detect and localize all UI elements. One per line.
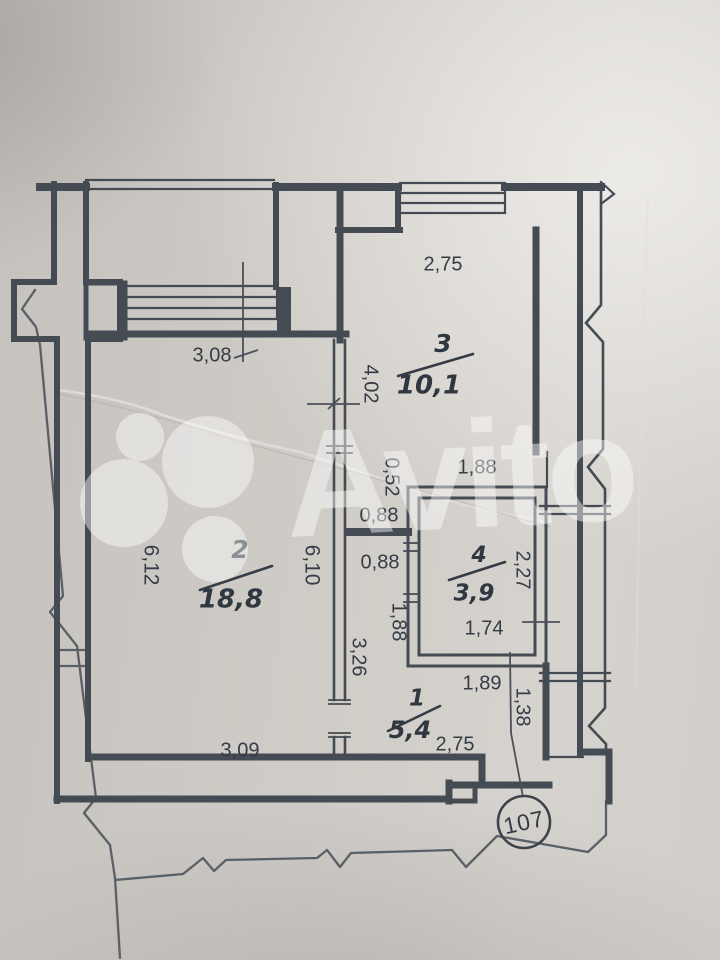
dim-room4-bottom-outer: 1,89 [463, 672, 502, 694]
bottom-wall [57, 752, 609, 801]
svg-text:18,8: 18,8 [199, 585, 263, 615]
svg-text:5,4: 5,4 [389, 716, 432, 744]
dim-entry-side: 1,38 [512, 688, 534, 727]
plan-svg: 107 2,75 3,08 4,02 0,52 1,88 0,88 0,88 1… [0, 0, 720, 960]
room3-window [400, 183, 505, 213]
avito-dots-logo-icon [80, 413, 254, 582]
dim-room4-bottom-inner: 1,74 [465, 617, 504, 639]
watermark-text: Avito [280, 382, 638, 570]
dim-room2-left: 6,12 [139, 545, 162, 586]
boundary-line-left [22, 290, 120, 958]
room3-upper-wall [338, 192, 400, 230]
dim-room1-bottom: 2,75 [436, 733, 475, 755]
apartment-number: 107 [501, 805, 547, 839]
cross-column-outer [14, 184, 57, 801]
room-1-label: 1 5,4 [388, 686, 440, 745]
entry-exterior-chunk [583, 752, 609, 801]
floor-plan-photo: 107 2,75 3,08 4,02 0,52 1,88 0,88 0,88 1… [0, 0, 720, 960]
dim-aux-balcony [234, 262, 258, 362]
dim-balcony: 3,08 [193, 344, 232, 366]
dim-corridor-segment: 1,88 [388, 603, 410, 642]
dim-room2-bottom: 3,09 [221, 739, 260, 761]
svg-text:3,9: 3,9 [454, 581, 495, 607]
room-3-label: 3 10,1 [397, 329, 473, 401]
watermark: Avito [80, 382, 638, 582]
balcony-rail [86, 180, 274, 189]
svg-text:3: 3 [434, 329, 451, 358]
svg-text:1: 1 [409, 686, 425, 712]
balcony-window [86, 283, 291, 338]
boundary-tie-lines [60, 650, 86, 666]
dim-corridor-length: 3,26 [348, 638, 370, 677]
dim-room3-top: 2,75 [424, 253, 463, 275]
